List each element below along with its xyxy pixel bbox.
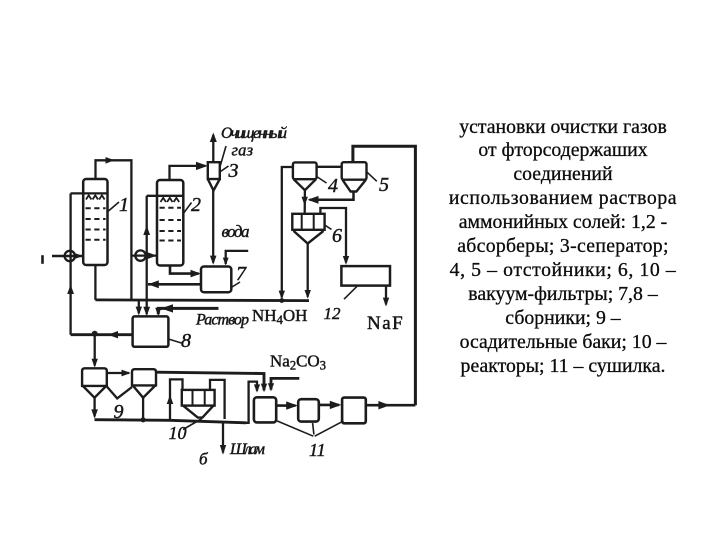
svg-text:NaF: NaF bbox=[367, 313, 404, 334]
svg-text:NH4OH: NH4OH bbox=[252, 306, 307, 327]
svg-text:10: 10 bbox=[169, 423, 187, 443]
svg-text:2: 2 bbox=[191, 194, 201, 216]
svg-text:5: 5 bbox=[379, 174, 389, 196]
svg-text:б: б bbox=[199, 450, 208, 469]
svg-text:3: 3 bbox=[228, 160, 239, 182]
svg-text:Na2CO3: Na2CO3 bbox=[270, 352, 326, 373]
svg-text:6: 6 bbox=[332, 225, 342, 247]
svg-text:7: 7 bbox=[236, 263, 247, 285]
svg-text:Очищенный: Очищенный bbox=[221, 125, 287, 142]
svg-text:Раствор: Раствор bbox=[195, 312, 249, 329]
svg-text:8: 8 bbox=[181, 330, 191, 352]
svg-text:вода: вода bbox=[222, 222, 250, 241]
svg-text:4: 4 bbox=[328, 175, 338, 197]
svg-text:газ: газ bbox=[232, 141, 254, 160]
svg-text:1: 1 bbox=[119, 194, 129, 216]
svg-text:11: 11 bbox=[309, 440, 326, 460]
svg-text:12: 12 bbox=[324, 304, 342, 323]
svg-text:9: 9 bbox=[114, 401, 124, 423]
svg-text:Шлам: Шлам bbox=[229, 441, 265, 458]
